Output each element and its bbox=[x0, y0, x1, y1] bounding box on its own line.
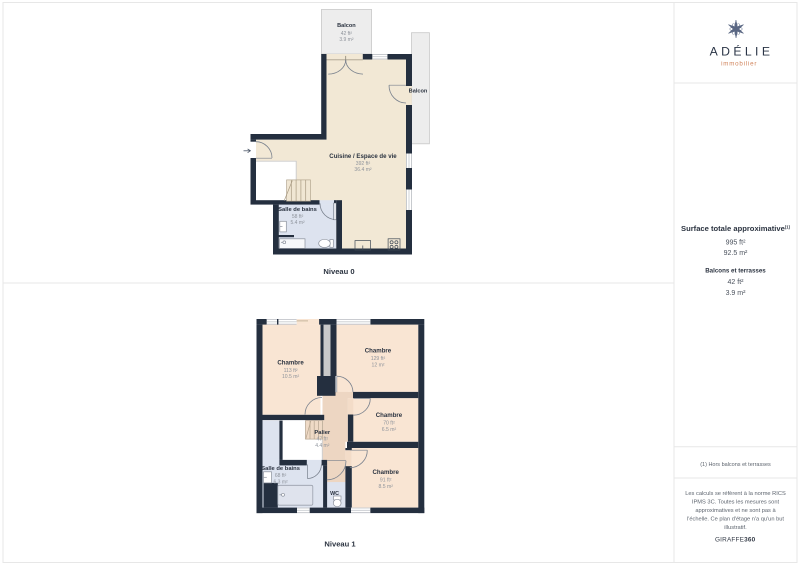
svg-text:Niveau 0: Niveau 0 bbox=[323, 267, 354, 276]
svg-text:Balcon: Balcon bbox=[337, 23, 356, 29]
svg-text:Salle de bains: Salle de bains bbox=[261, 466, 300, 472]
svg-text:91 ft²: 91 ft² bbox=[380, 478, 392, 484]
svg-text:Niveau 1: Niveau 1 bbox=[324, 539, 356, 548]
svg-text:58 ft²: 58 ft² bbox=[292, 214, 304, 220]
svg-text:12 m²: 12 m² bbox=[371, 362, 384, 368]
svg-text:995 ft²: 995 ft² bbox=[726, 240, 747, 247]
svg-text:68 ft²: 68 ft² bbox=[275, 473, 287, 479]
svg-text:Balcon: Balcon bbox=[409, 88, 428, 94]
svg-text:l'échelle. Ce plan d'étage n'a: l'échelle. Ce plan d'étage n'a qu'un but bbox=[687, 516, 784, 522]
svg-text:(1) Hors balcons et terrasses: (1) Hors balcons et terrasses bbox=[700, 462, 771, 468]
svg-text:3.9 m²: 3.9 m² bbox=[339, 37, 354, 43]
svg-text:10.5 m²: 10.5 m² bbox=[282, 374, 300, 380]
svg-text:113 ft²: 113 ft² bbox=[284, 368, 298, 374]
svg-text:70 ft²: 70 ft² bbox=[383, 421, 395, 427]
svg-text:Balcons et terrasses: Balcons et terrasses bbox=[705, 268, 766, 275]
svg-text:Chambre: Chambre bbox=[277, 360, 304, 367]
svg-text:6.5 m²: 6.5 m² bbox=[382, 427, 397, 433]
svg-text:WC: WC bbox=[330, 491, 339, 497]
svg-text:3.9 m²: 3.9 m² bbox=[726, 290, 747, 297]
svg-text:Chambre: Chambre bbox=[365, 348, 392, 355]
svg-text:5.4 m²: 5.4 m² bbox=[291, 220, 306, 226]
svg-text:129 ft²: 129 ft² bbox=[371, 356, 386, 362]
svg-text:92.5 m²: 92.5 m² bbox=[724, 250, 748, 257]
svg-text:IPMS 3C. Toutes les mesures so: IPMS 3C. Toutes les mesures sont bbox=[692, 499, 780, 505]
svg-text:Salle de bains: Salle de bains bbox=[278, 207, 317, 213]
svg-text:Palier: Palier bbox=[314, 430, 331, 436]
svg-text:42 ft²: 42 ft² bbox=[341, 31, 353, 37]
svg-text:Les calculs se réfèrent à la n: Les calculs se réfèrent à la norme RICS bbox=[685, 491, 786, 497]
svg-text:GIRAFFE360: GIRAFFE360 bbox=[715, 537, 756, 544]
svg-text:6.3 m²: 6.3 m² bbox=[274, 479, 289, 485]
svg-text:immobilier: immobilier bbox=[721, 61, 757, 68]
svg-text:4.4 m²: 4.4 m² bbox=[315, 443, 330, 449]
svg-text:47 ft²: 47 ft² bbox=[317, 437, 329, 443]
svg-text:392 ft²: 392 ft² bbox=[356, 161, 371, 167]
svg-text:Chambre: Chambre bbox=[376, 412, 403, 419]
svg-text:Chambre: Chambre bbox=[372, 469, 399, 476]
svg-text:Cuisine / Espace de vie: Cuisine / Espace de vie bbox=[329, 153, 397, 160]
svg-text:42 ft²: 42 ft² bbox=[728, 279, 745, 286]
svg-text:approximatives et ne sont pas: approximatives et ne sont pas à bbox=[695, 508, 776, 514]
svg-text:Surface totale approximative(1: Surface totale approximative(1) bbox=[681, 224, 791, 233]
svg-text:ADÉLIE: ADÉLIE bbox=[710, 44, 774, 59]
svg-text:illustratif.: illustratif. bbox=[724, 525, 747, 531]
svg-text:36.4 m²: 36.4 m² bbox=[354, 167, 372, 173]
svg-text:8.5 m²: 8.5 m² bbox=[378, 484, 393, 490]
